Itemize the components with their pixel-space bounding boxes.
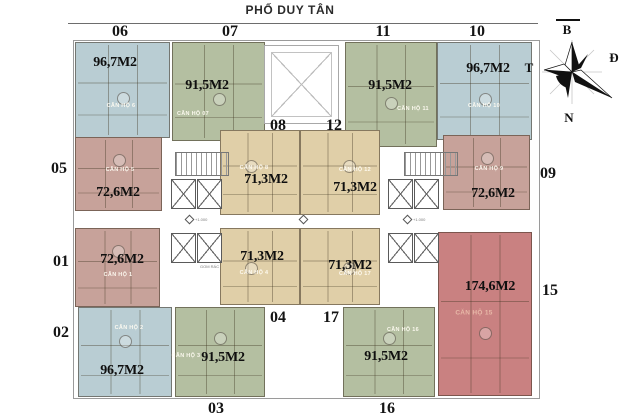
unit-08-area-label: 71,3M2 <box>244 172 288 188</box>
elevator-icon <box>414 179 439 209</box>
unit-16-area-label: 91,5M2 <box>364 349 408 365</box>
floorplan-texture <box>81 310 169 394</box>
unit-04-footprint <box>220 228 300 305</box>
unit-09-name-label: CĂN HỘ 9 <box>475 166 504 172</box>
compass-north-bar <box>556 19 580 21</box>
unit-03-name-label: CĂN HỘ 3 <box>172 353 201 359</box>
unit-07-area-label: 91,5M2 <box>185 78 229 94</box>
compass-east-label: Đ <box>609 50 618 66</box>
unit-09-area-label: 72,6M2 <box>471 186 515 202</box>
unit-01-area-label: 72,6M2 <box>100 252 144 268</box>
unit-15-name-label: CĂN HỘ 15 <box>455 310 492 317</box>
unit-17-area-label: 71,3M2 <box>328 258 372 274</box>
unit-04-number: 04 <box>270 309 286 327</box>
unit-stamp <box>214 332 227 345</box>
unit-06-number: 06 <box>112 23 128 41</box>
unit-09-number: 09 <box>540 165 556 183</box>
unit-12-number: 12 <box>326 117 342 135</box>
unit-16-name-label: CĂN HỘ 16 <box>387 327 419 333</box>
unit-05-number: 05 <box>51 160 67 178</box>
elevator-icon <box>388 179 413 209</box>
unit-08-name-label: CĂN HỘ 8 <box>240 165 269 171</box>
level-label: +1.000 <box>195 217 207 222</box>
void-cross-icon <box>271 52 332 117</box>
unit-11-area-label: 91,5M2 <box>368 78 412 94</box>
floorplan-texture <box>440 45 529 137</box>
unit-06-area-label: 96,7M2 <box>93 55 137 71</box>
level-label: +1.000 <box>413 217 425 222</box>
unit-stamp <box>213 93 226 106</box>
unit-02-name-label: CĂN HỘ 2 <box>115 325 144 331</box>
unit-05-name-label: CĂN HỘ 5 <box>106 167 135 173</box>
unit-11-number: 11 <box>375 23 390 41</box>
unit-07-number: 07 <box>222 23 238 41</box>
elevator-icon <box>171 179 196 209</box>
elevator-icon <box>171 233 196 263</box>
elevator-icon <box>388 233 413 263</box>
unit-16-number: 16 <box>379 400 395 418</box>
floorplan-texture <box>223 231 297 302</box>
unit-08-number: 08 <box>270 117 286 135</box>
unit-stamp <box>113 154 126 167</box>
elevator-icon <box>197 179 222 209</box>
compass-west-label: T <box>525 60 534 76</box>
unit-10-name-label: CĂN HỘ 10 <box>468 103 500 109</box>
unit-06-name-label: CĂN HỘ 6 <box>107 103 136 109</box>
unit-17-number: 17 <box>323 309 339 327</box>
compass-rose-icon <box>528 25 623 125</box>
unit-01-number: 01 <box>53 253 69 271</box>
unit-15-area-label: 174,6M2 <box>465 279 515 295</box>
unit-01-name-label: CĂN HỘ 1 <box>104 272 133 278</box>
right-staircase <box>404 152 458 176</box>
unit-15-number: 15 <box>542 282 558 300</box>
compass-south-label: N <box>564 110 573 126</box>
unit-10-footprint <box>437 42 532 140</box>
unit-04-area-label: 71,3M2 <box>240 249 284 265</box>
unit-stamp <box>385 97 398 110</box>
skylight-void <box>264 45 339 124</box>
trash-room-label: GOM RÁC <box>200 264 219 269</box>
unit-07-name-label: CĂN HỘ 07 <box>177 111 209 117</box>
unit-05-area-label: 72,6M2 <box>96 185 140 201</box>
floor-plan-canvas: PHỐ DUY TÂN <box>0 0 625 420</box>
elevator-icon <box>414 233 439 263</box>
unit-11-name-label: CĂN HỘ 11 <box>397 106 429 112</box>
unit-02-area-label: 96,7M2 <box>100 363 144 379</box>
unit-03-number: 03 <box>208 400 224 418</box>
compass-north-label: B <box>563 22 572 38</box>
unit-02-footprint <box>78 307 172 397</box>
elevator-icon <box>197 233 222 263</box>
street-line <box>68 23 538 24</box>
unit-12-area-label: 71,3M2 <box>333 180 377 196</box>
street-title: PHỐ DUY TÂN <box>245 3 334 17</box>
unit-10-number: 10 <box>469 23 485 41</box>
unit-03-area-label: 91,5M2 <box>201 350 245 366</box>
unit-02-number: 02 <box>53 324 69 342</box>
unit-stamp <box>481 152 494 165</box>
unit-12-name-label: CĂN HỘ 12 <box>339 167 371 173</box>
unit-10-area-label: 96,7M2 <box>466 61 510 77</box>
unit-stamp <box>383 332 396 345</box>
left-staircase <box>175 152 229 176</box>
unit-04-name-label: CĂN HỘ 4 <box>240 270 269 276</box>
